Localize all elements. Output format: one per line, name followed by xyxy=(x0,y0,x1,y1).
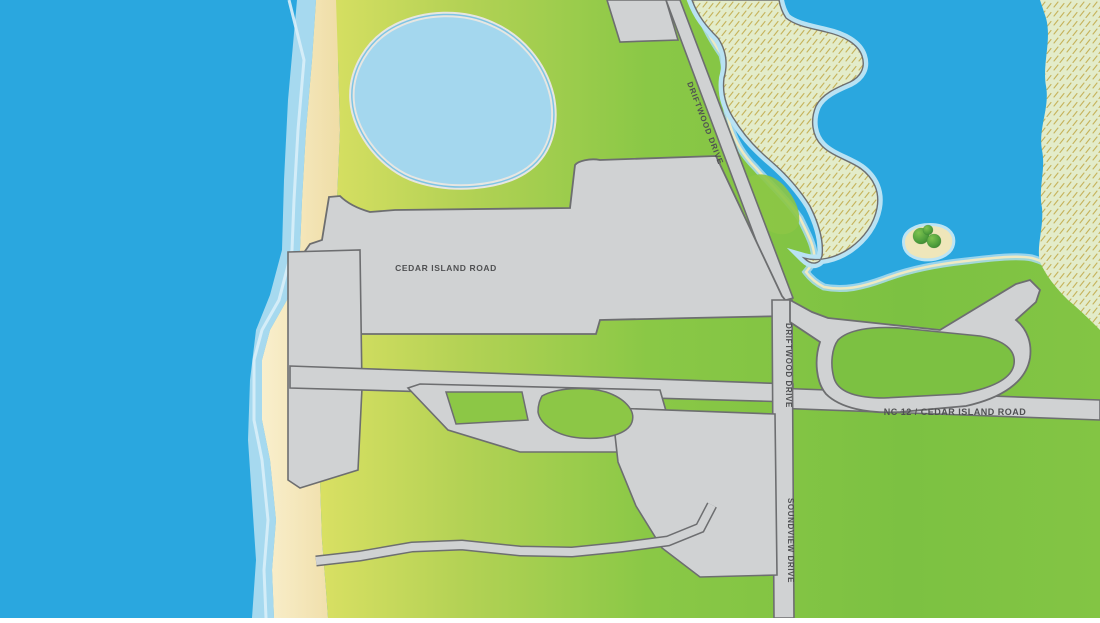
svg-text:NC 12 / CEDAR ISLAND ROAD: NC 12 / CEDAR ISLAND ROAD xyxy=(884,407,1027,417)
svg-text:DRIFTWOOD DRIVE: DRIFTWOOD DRIVE xyxy=(784,323,793,408)
svg-text:SOUNDVIEW DRIVE: SOUNDVIEW DRIVE xyxy=(786,498,795,583)
svg-text:CEDAR ISLAND ROAD: CEDAR ISLAND ROAD xyxy=(395,263,497,273)
